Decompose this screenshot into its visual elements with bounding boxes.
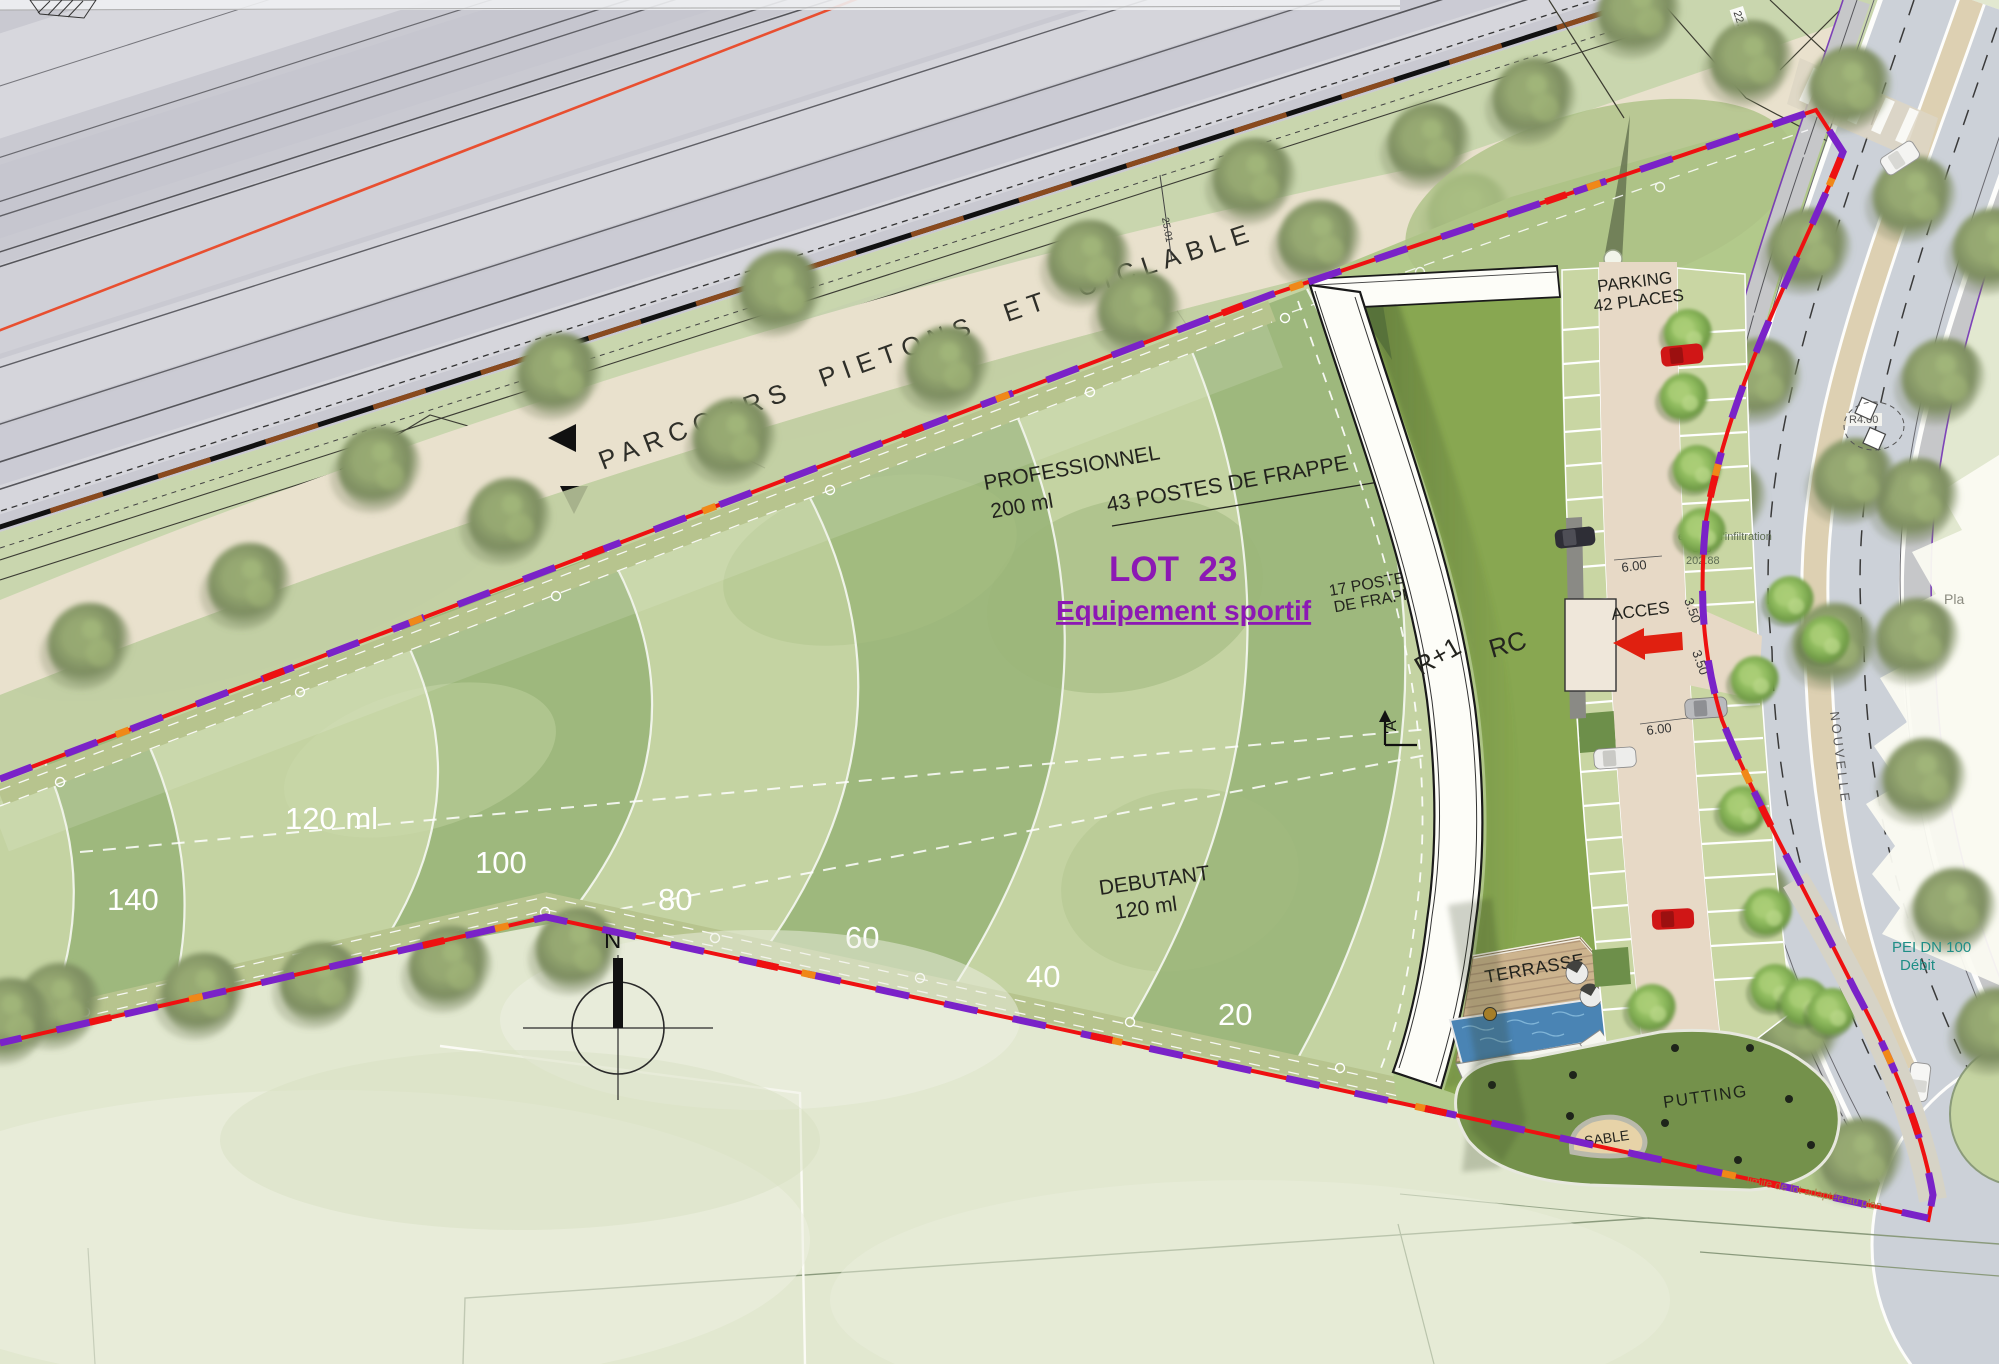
- svg-text:Débit: Débit: [1900, 957, 1936, 974]
- svg-text:120 ml: 120 ml: [285, 801, 378, 836]
- svg-text:140: 140: [107, 882, 159, 917]
- svg-text:LOT 23: LOT 23: [1109, 550, 1237, 589]
- svg-text:Equipement sportif: Equipement sportif: [1056, 595, 1312, 626]
- svg-text:100: 100: [475, 845, 527, 880]
- svg-text:80: 80: [658, 882, 692, 917]
- svg-text:20: 20: [1218, 997, 1252, 1032]
- svg-text:40: 40: [1026, 959, 1060, 994]
- svg-text:6.00: 6.00: [1621, 557, 1648, 575]
- svg-text:'A: 'A: [1383, 720, 1400, 734]
- svg-text:Pla: Pla: [1944, 591, 1964, 607]
- svg-text:PEI DN 100: PEI DN 100: [1892, 939, 1971, 956]
